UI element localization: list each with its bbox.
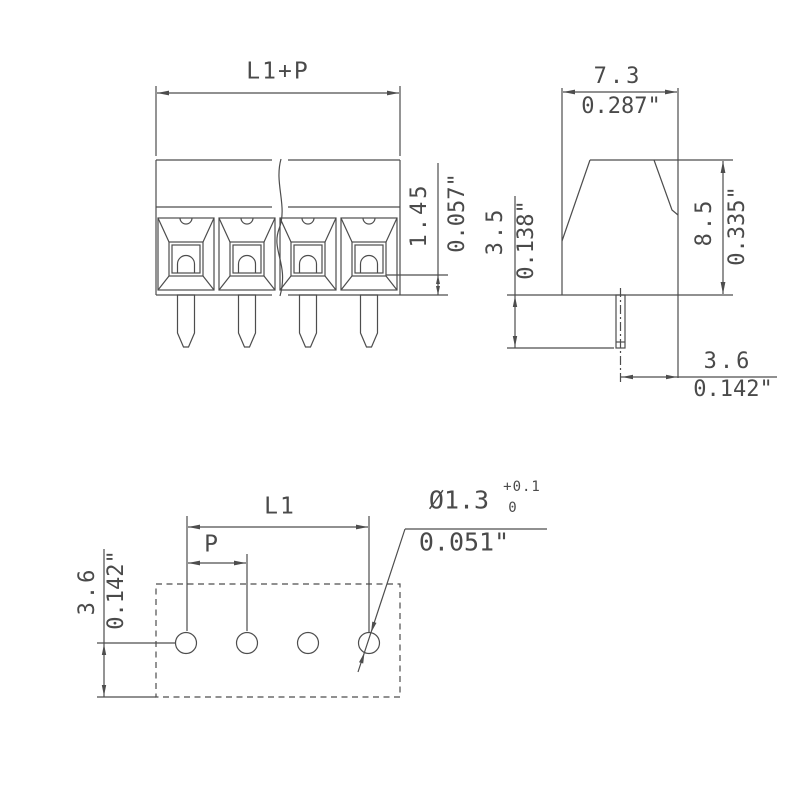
dim-l1p-label: L1+P xyxy=(246,61,309,84)
terminal-cell xyxy=(341,218,397,290)
dim-wire-stop-inch-label: 0.057" xyxy=(447,173,469,252)
dim-pitch-label: P xyxy=(204,534,220,557)
side-solder-pin xyxy=(616,288,625,382)
hole-diameter-label: Ø1.3 xyxy=(429,488,489,513)
side-left-slope xyxy=(562,160,590,241)
side-right-slope xyxy=(654,160,678,215)
dim-total-width xyxy=(156,86,400,156)
dim-row-offset-inch-label: 0.142" xyxy=(106,550,128,629)
drill-hole xyxy=(176,633,197,654)
dim-pin-to-edge-inch-label: 0.142" xyxy=(693,379,772,401)
drawing-canvas xyxy=(0,0,800,800)
hole-tolerance-plus-label: +0.1 xyxy=(503,480,541,494)
solder-pin xyxy=(178,295,195,347)
hole-tolerance-minus-label: 0 xyxy=(508,501,517,515)
dim-pin-to-edge-mm-label: 3.6 xyxy=(704,351,753,373)
terminal-cell xyxy=(280,218,336,290)
dim-pin-length-mm-label: 3.5 xyxy=(485,207,507,256)
pcb-outline xyxy=(156,584,400,697)
dim-l1-label: L1 xyxy=(264,496,296,519)
drill-hole xyxy=(359,633,380,654)
dim-height-mm-label: 8.5 xyxy=(694,198,716,247)
drill-hole xyxy=(298,633,319,654)
solder-pin xyxy=(239,295,256,347)
drill-hole xyxy=(237,633,258,654)
terminal-cell xyxy=(158,218,214,290)
dim-height-inch-label: 0.335" xyxy=(727,186,749,265)
hole-diameter-inch-label: 0.051" xyxy=(419,530,509,555)
dim-row-offset-mm-label: 3.6 xyxy=(77,567,99,616)
dim-width-mm-label: 7.3 xyxy=(594,66,643,88)
dim-wire-stop-mm-label: 1.45 xyxy=(409,183,431,248)
dim-width-inch-label: 0.287" xyxy=(581,96,660,118)
technical-drawing-page: L1+P 1.45 0.057" 7.3 0.287" 3.5 0.138" 8… xyxy=(0,0,800,800)
solder-pin xyxy=(361,295,378,347)
dim-pin-length-inch-label: 0.138" xyxy=(516,200,538,279)
terminal-cell xyxy=(219,218,275,290)
solder-pin xyxy=(300,295,317,347)
front-view-drawing xyxy=(156,86,448,347)
dim-pitch xyxy=(188,554,247,631)
